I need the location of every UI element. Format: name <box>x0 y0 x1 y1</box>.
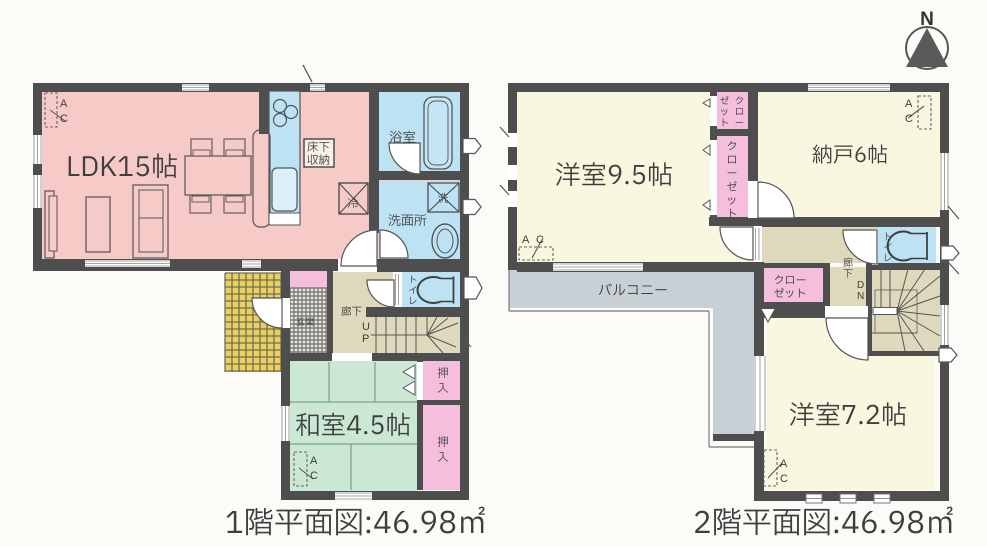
svg-text:C: C <box>780 473 788 485</box>
svg-text:C: C <box>310 470 318 482</box>
svg-text:C: C <box>905 113 913 125</box>
svg-text:P: P <box>362 333 369 345</box>
svg-text:N: N <box>920 9 934 30</box>
svg-text:U: U <box>362 321 370 333</box>
svg-text:D: D <box>857 280 864 291</box>
svg-text:A: A <box>780 458 788 470</box>
svg-text:C: C <box>536 234 544 246</box>
svg-text:N: N <box>857 291 864 302</box>
svg-text:A: A <box>522 234 530 246</box>
svg-text:A: A <box>905 98 913 110</box>
svg-text:A: A <box>310 455 318 467</box>
svg-text:A: A <box>60 98 68 110</box>
svg-text:C: C <box>60 113 68 125</box>
